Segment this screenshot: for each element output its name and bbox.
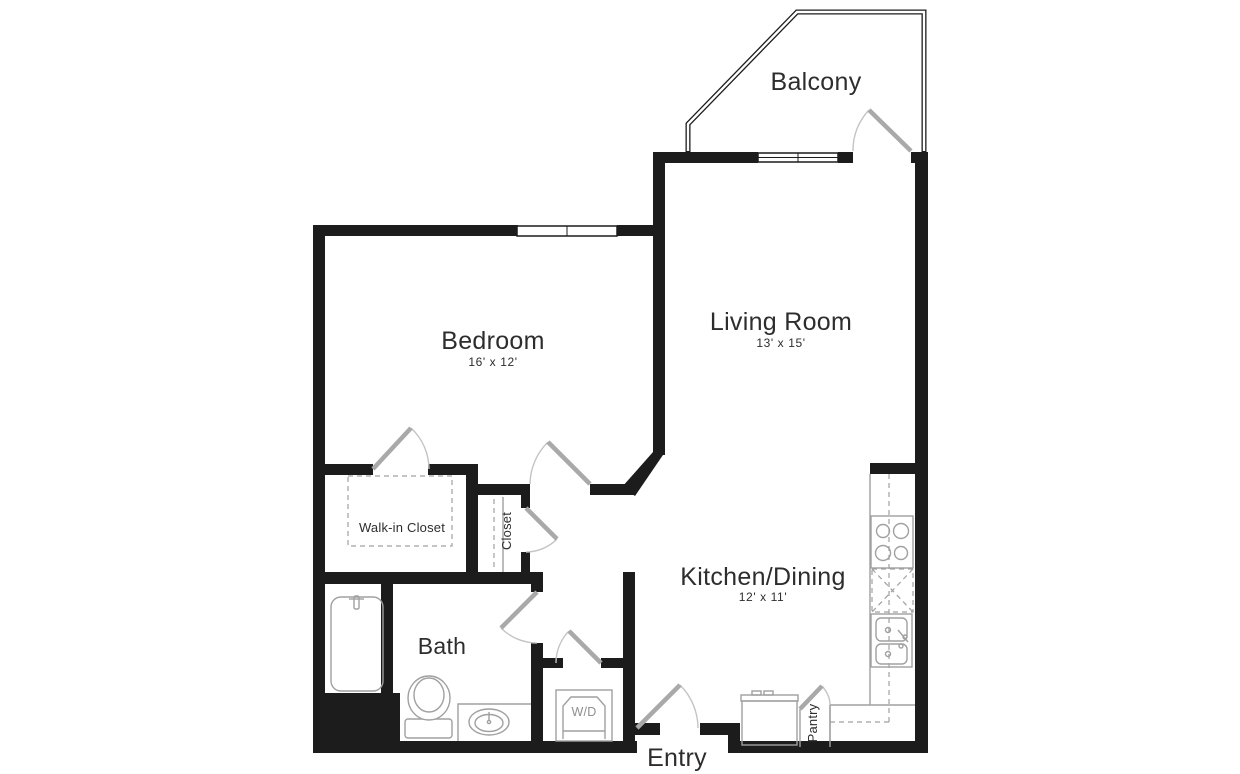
door-bath <box>501 592 537 643</box>
room-label-living: Living Room <box>710 308 852 336</box>
toilet-tank <box>405 719 452 738</box>
room-dims-kitchen: 12' x 11' <box>739 590 787 604</box>
tub-faucet-stem <box>354 596 359 609</box>
sink-drain <box>886 652 891 657</box>
room-label-entry: Entry <box>647 744 707 772</box>
stove-outline <box>871 516 913 568</box>
wall-jog <box>466 464 478 495</box>
wall-walkin-closet-divider <box>466 495 478 572</box>
wall-bedroom-bottom-mid <box>428 464 466 475</box>
wall-wd-top-left <box>543 658 563 668</box>
dishwasher-x <box>872 569 913 612</box>
door-leaf <box>569 631 601 663</box>
kitchen-double-sink-icon <box>871 614 912 667</box>
wall-entry-stub-right <box>700 723 740 735</box>
door-arc <box>680 685 698 728</box>
wall-bedroom-bottom-left <box>313 464 373 475</box>
wall-counter-stub <box>870 463 915 474</box>
refrigerator-icon <box>741 691 798 745</box>
door-bedroom <box>530 442 590 484</box>
room-label-kitchen: Kitchen/Dining <box>680 563 845 591</box>
fridge-top <box>741 695 798 701</box>
floor-plan-canvas: Balcony Living Room 13' x 15' Bedroom 16… <box>0 0 1240 774</box>
room-label-balcony: Balcony <box>770 68 861 96</box>
door-closet <box>526 508 557 552</box>
faucet-handle <box>903 635 907 639</box>
room-label-wd: W/D <box>572 705 597 719</box>
window-bedroom <box>517 226 617 236</box>
floor-plan-page: Balcony Living Room 13' x 15' Bedroom 16… <box>0 0 1240 774</box>
wall-kitchen-west <box>623 572 635 753</box>
door-arc <box>411 428 429 469</box>
door-entry <box>637 685 698 728</box>
sink-drain <box>487 720 490 723</box>
wall-closet-door-stub-bottom <box>521 552 530 572</box>
wall-living-top-right <box>911 152 928 163</box>
fridge-handle <box>752 691 761 695</box>
door-leaf <box>373 428 411 469</box>
door-walk-in-closet <box>373 428 429 469</box>
room-label-closet: Closet <box>499 512 514 550</box>
toilet-icon <box>405 676 452 738</box>
wall-bedroom-living-divider <box>653 152 665 455</box>
door-arc <box>530 442 548 484</box>
walkin-shelf-dashed <box>348 476 452 546</box>
door-leaf <box>501 592 537 628</box>
room-dims-bedroom: 16' x 12' <box>468 355 517 369</box>
wall-bath-door-stub <box>531 643 543 663</box>
fridge-handle <box>764 691 773 695</box>
wall-bedroom-door-south <box>590 484 635 495</box>
wall-right <box>915 152 928 753</box>
door-balcony <box>853 110 911 151</box>
tub-outline <box>331 597 383 691</box>
burner <box>877 525 890 538</box>
sink-drain <box>886 628 891 633</box>
wall-living-top-mid <box>838 152 853 163</box>
burner <box>876 546 891 561</box>
room-dims-living: 13' x 15' <box>756 336 805 350</box>
bathroom-sink-icon <box>458 704 531 741</box>
door-leaf <box>869 110 911 151</box>
door-leaf <box>637 685 680 728</box>
wall-living-top-left <box>653 152 758 163</box>
wall-bath-door-corner <box>531 584 543 592</box>
dishwasher-icon <box>872 569 913 612</box>
wall-left <box>313 225 325 753</box>
door-arc <box>526 539 557 552</box>
walls <box>313 152 928 753</box>
wall-closets-bottom <box>313 572 543 584</box>
wall-bedroom-top-left <box>313 225 518 236</box>
door-arc <box>501 628 537 643</box>
stove-cooktop-icon <box>871 516 913 568</box>
room-label-pantry: Pantry <box>805 703 820 742</box>
wall-bath-right <box>531 663 543 741</box>
room-label-walk-in-closet: Walk-in Closet <box>359 520 445 535</box>
sink-bowl-top <box>876 618 907 641</box>
faucet-handle <box>899 644 903 648</box>
burner <box>894 524 909 539</box>
wall-closet-door-stub-top <box>521 495 530 508</box>
fridge-outline <box>742 701 797 745</box>
door-leaf <box>548 442 590 484</box>
door-arc <box>853 110 869 151</box>
door-leaf <box>526 508 557 539</box>
burner <box>895 547 908 560</box>
door-arc <box>822 686 830 708</box>
window-living-room <box>758 153 838 162</box>
room-label-bedroom: Bedroom <box>441 327 545 355</box>
bathtub-icon <box>331 596 383 691</box>
wall-corner-mass <box>313 693 400 753</box>
room-label-bath: Bath <box>418 633 467 659</box>
